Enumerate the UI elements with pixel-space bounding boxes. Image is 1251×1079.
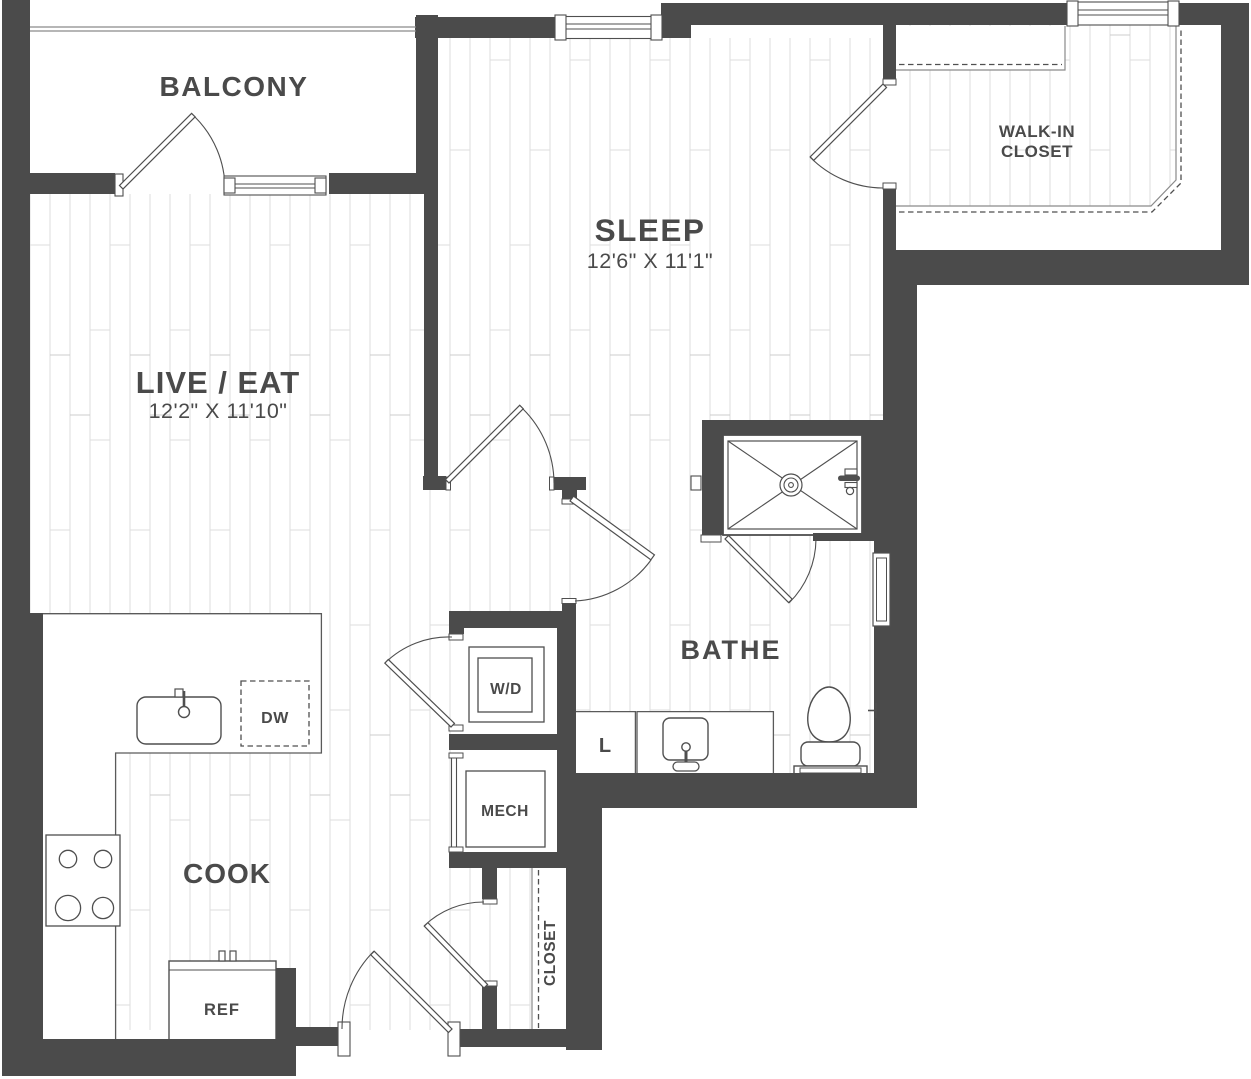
- svg-text:COOK: COOK: [183, 858, 271, 889]
- svg-text:DW: DW: [261, 710, 289, 727]
- svg-text:L: L: [599, 735, 611, 757]
- svg-text:REF: REF: [204, 1001, 240, 1019]
- svg-text:MECH: MECH: [481, 803, 529, 820]
- svg-text:BALCONY: BALCONY: [160, 71, 309, 102]
- svg-text:LIVE / EAT: LIVE / EAT: [136, 365, 300, 400]
- svg-text:WALK-IN: WALK-IN: [999, 122, 1075, 141]
- svg-text:W/D: W/D: [490, 681, 522, 698]
- svg-text:SLEEP: SLEEP: [595, 212, 706, 248]
- svg-text:12'2" X 11'10": 12'2" X 11'10": [149, 399, 288, 423]
- svg-text:12'6" X 11'1": 12'6" X 11'1": [587, 249, 713, 273]
- svg-text:CLOSET: CLOSET: [1001, 142, 1073, 161]
- svg-text:BATHE: BATHE: [681, 635, 782, 665]
- svg-text:CLOSET: CLOSET: [542, 920, 559, 986]
